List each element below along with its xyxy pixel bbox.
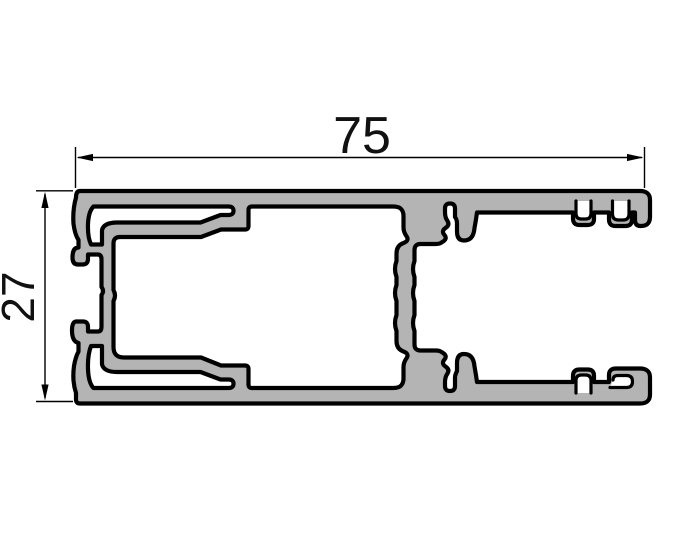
width-arrow-left-icon: [77, 154, 94, 161]
gasket-hook-slot-top-right: [613, 201, 630, 220]
height-dimension: 27: [0, 191, 73, 402]
gasket-hook-slot-top-left: [576, 201, 591, 219]
width-arrow-right-icon: [627, 154, 644, 161]
height-dimension-label: 27: [0, 271, 44, 322]
height-arrow-top-icon: [41, 192, 48, 208]
height-arrow-bottom-icon: [41, 385, 48, 401]
width-dimension-label: 75: [333, 107, 391, 165]
profile-drawing: 75 27: [0, 0, 696, 553]
profile-shape: [72, 191, 650, 404]
profile-outline: [72, 191, 650, 404]
width-dimension: 75: [76, 107, 645, 188]
gasket-hook-slot-bottom-left: [576, 375, 591, 393]
technical-drawing-canvas: 75 27: [0, 0, 696, 553]
gasket-hook-slot-bottom-right: [610, 376, 633, 388]
